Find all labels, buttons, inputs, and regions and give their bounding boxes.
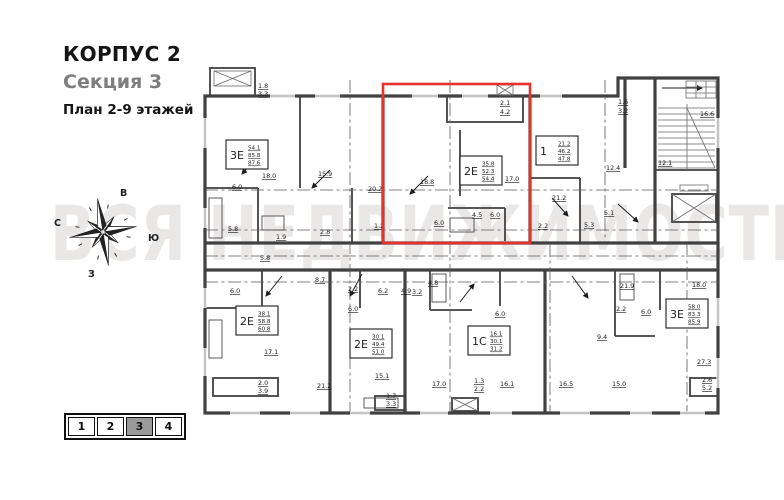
room-area-label: 6.0 (230, 287, 240, 295)
floor-plan-drawing: 1.83.318.015.920.26.05.81.92.81.22.14.21… (200, 58, 725, 418)
room-area-label: 12.4 (606, 164, 620, 172)
apartment-area-value: 35.8 (482, 162, 495, 168)
room-area-label: 3.3 (386, 400, 396, 408)
apartment-area-value: 21.2 (558, 142, 570, 148)
room-area-label: 4.8 (428, 279, 438, 287)
apartment-area-value: 49.4 (372, 342, 385, 348)
room-area-label: 2.1 (500, 99, 510, 107)
room-area-label: 6.2 (378, 287, 388, 295)
axis-lines (205, 80, 718, 412)
page-button-2[interactable]: 2 (97, 417, 124, 436)
vent-box (497, 85, 513, 95)
apartment-area-value: 58.8 (258, 319, 271, 325)
room-area-label: 18.0 (262, 172, 276, 180)
room-area-label: 6.0 (490, 211, 500, 219)
balcony-highlight-apartment (447, 96, 523, 122)
room-area-label: 6.0 (495, 310, 505, 318)
apartment-type: 2Е (354, 338, 368, 351)
room-area-label: 27.3 (697, 358, 711, 366)
outer-walls (205, 78, 718, 413)
room-area-label: 9.4 (597, 333, 607, 341)
apartment-type: 2Е (240, 315, 254, 328)
apartment-area-value: 30.1 (490, 339, 503, 345)
room-area-label: 2.2 (616, 305, 626, 313)
room-area-label: 4.2 (500, 108, 510, 116)
apartment-area-value: 51.0 (372, 350, 385, 356)
room-area-label: 3.9 (258, 387, 268, 395)
apartment-label-3Е: 3Е58.083.385.9 (666, 299, 708, 328)
room-area-label: 18.8 (420, 178, 434, 186)
floor-pagination: 1234 (64, 413, 186, 440)
room-area-label: 6.0 (641, 308, 651, 316)
apartment-area-value: 31.2 (490, 347, 502, 353)
room-area-label: 1.9 (276, 233, 286, 241)
apartment-type: 1 (540, 145, 547, 158)
room-area-label: 2.2 (538, 222, 548, 230)
room-area-label: 8.7 (315, 276, 325, 284)
room-area-label: 5.8 (228, 225, 238, 233)
room-area-labels: 1.83.318.015.920.26.05.81.92.81.22.14.21… (228, 82, 714, 408)
room-area-label: 15.9 (318, 170, 332, 178)
room-area-label: 2.6 (702, 376, 712, 384)
building-title: КОРПУС 2 (63, 42, 193, 66)
room-area-label: 21.2 (552, 194, 566, 202)
apartment-area-value: 54.4 (482, 177, 495, 183)
interior-walls (205, 78, 718, 413)
fixtures (209, 198, 634, 408)
floor-plan: 1.83.318.015.920.26.05.81.92.81.22.14.21… (200, 58, 725, 418)
apartment-area-value: 47.8 (558, 157, 571, 163)
room-area-label: 21.2 (317, 382, 331, 390)
room-area-label: 3.3 (258, 90, 268, 98)
title-block: КОРПУС 2 Секция 3 План 2-9 этажей (63, 42, 193, 118)
apartment-area-value: 46.2 (558, 149, 570, 155)
room-area-label: 1.3 (474, 377, 484, 385)
room-area-label: 5.1 (604, 209, 614, 217)
room-area-label: 4.5 (472, 211, 482, 219)
room-area-label: 5.8 (260, 254, 270, 262)
room-area-label: 5.3 (584, 221, 594, 229)
room-area-label: 15.0 (612, 380, 626, 388)
apartment-area-value: 38.1 (258, 312, 271, 318)
page-button-3[interactable]: 3 (126, 417, 153, 436)
apartment-area-value: 60.8 (258, 327, 271, 333)
room-area-label: 2.0 (258, 379, 268, 387)
apartment-type: 1С (472, 335, 487, 348)
room-area-label: 6.0 (348, 305, 358, 313)
room-area-label: 1.7 (386, 392, 396, 400)
shaft-bottom (452, 398, 478, 411)
apartment-area-value: 30.1 (372, 335, 385, 341)
floors-subtitle: План 2-9 этажей (63, 102, 193, 118)
apartment-area-value: 58.0 (688, 305, 701, 311)
room-area-label: 15.1 (375, 372, 389, 380)
room-area-label: 16.6 (700, 110, 714, 118)
room-area-label: 20.2 (368, 185, 382, 193)
apartment-labels: 3Е54.185.887.62Е35.852.354.4121.246.247.… (226, 136, 708, 358)
balcony-top-left (210, 68, 255, 96)
floorplan-page: ВСЯ НЕДВИЖИМОСТЬ КОРПУС 2 Секция 3 План … (0, 0, 784, 500)
room-area-label: 18.0 (692, 281, 706, 289)
compass-rose-icon: В С Ю З (48, 183, 160, 279)
room-area-label: 2.2 (348, 285, 358, 293)
room-area-label: 21.9 (620, 282, 634, 290)
apartment-type: 2Е (464, 165, 478, 178)
apartment-area-value: 83.3 (688, 312, 701, 318)
windows (205, 96, 718, 413)
apartment-label-1С: 1С16.130.131.2 (468, 326, 510, 355)
compass-label-south: Ю (148, 233, 159, 244)
room-area-label: 6.0 (232, 183, 242, 191)
room-area-label: 17.0 (432, 380, 446, 388)
page-button-1[interactable]: 1 (68, 417, 95, 436)
room-area-label: 1.8 (258, 82, 268, 90)
room-area-label: 6.0 (434, 219, 444, 227)
apartment-label-2Е: 2Е38.158.860.8 (236, 306, 278, 335)
apartment-area-value: 16.1 (490, 332, 503, 338)
machine-room-box (686, 81, 716, 98)
apartment-type: 3Е (230, 149, 244, 162)
apartment-area-value: 54.1 (248, 146, 261, 152)
apartment-area-value: 85.8 (248, 153, 261, 159)
room-area-label: 17.1 (264, 348, 278, 356)
section-title: Секция 3 (63, 71, 193, 93)
room-area-label: 16.5 (559, 380, 573, 388)
room-area-label: 5.2 (702, 384, 712, 392)
elevator-shaft (672, 185, 716, 222)
balcony-bottom-left (213, 378, 278, 396)
apartment-label-2Е: 2Е30.149.451.0 (350, 329, 392, 358)
room-area-label: 2.2 (474, 385, 484, 393)
room-area-label: 16.1 (500, 380, 514, 388)
page-button-4[interactable]: 4 (155, 417, 182, 436)
room-area-label: 3.2 (412, 288, 422, 296)
room-area-label: 3.2 (618, 107, 628, 115)
apartment-label-3Е: 3Е54.185.887.6 (226, 140, 268, 169)
room-area-label: 4.9 (401, 287, 411, 295)
compass-label-east: В (120, 188, 127, 199)
apartment-area-value: 87.6 (248, 161, 261, 167)
room-area-label: 2.8 (320, 228, 330, 236)
room-area-label: 1.6 (618, 98, 628, 106)
staircase (658, 88, 715, 170)
room-area-label: 12.1 (658, 159, 672, 167)
room-area-label: 17.0 (505, 175, 519, 183)
apartment-area-value: 85.9 (688, 320, 701, 326)
apartment-type: 3Е (670, 308, 684, 321)
apartment-label-2Е: 2Е35.852.354.4 (460, 156, 502, 185)
apartment-area-value: 52.3 (482, 169, 495, 175)
apartment-label-1: 121.246.247.8 (536, 136, 578, 165)
compass-label-north: С (54, 218, 61, 229)
compass-label-west: З (88, 269, 95, 279)
